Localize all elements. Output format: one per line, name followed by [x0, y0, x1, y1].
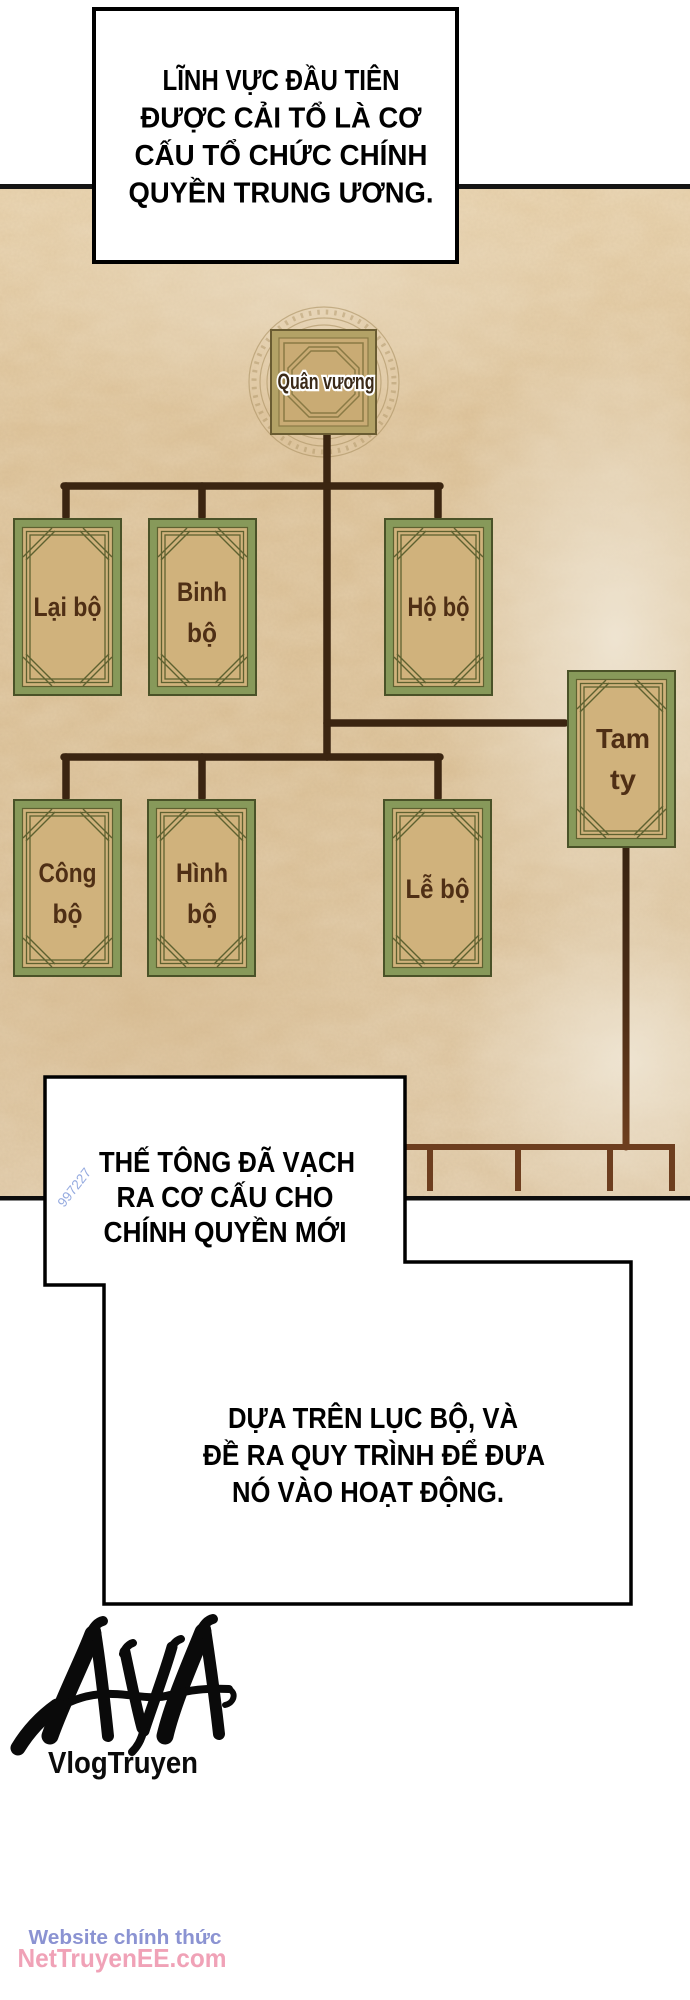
svg-text:VlogTruyen: VlogTruyen	[48, 1745, 198, 1780]
svg-text:DỰA TRÊN LỤC BỘ, VÀ: DỰA TRÊN LỤC BỘ, VÀ	[228, 1401, 518, 1435]
svg-text:Hình: Hình	[176, 858, 228, 888]
svg-text:CẤU TỔ CHỨC CHÍNH: CẤU TỔ CHỨC CHÍNH	[135, 138, 428, 172]
svg-text:bộ: bộ	[53, 899, 83, 929]
svg-text:LĨNH VỰC ĐẦU TIÊN: LĨNH VỰC ĐẦU TIÊN	[163, 63, 400, 97]
svg-text:ĐƯỢC CẢI TỔ LÀ CƠ: ĐƯỢC CẢI TỔ LÀ CƠ	[141, 101, 422, 135]
svg-text:Quân vương: Quân vương	[278, 369, 375, 394]
svg-text:CHÍNH QUYỀN MỚI: CHÍNH QUYỀN MỚI	[104, 1215, 347, 1249]
svg-text:Hộ bộ: Hộ bộ	[408, 592, 470, 622]
svg-text:Tam: Tam	[596, 723, 650, 754]
svg-text:ĐỀ RA QUY TRÌNH ĐỂ ĐƯA: ĐỀ RA QUY TRÌNH ĐỂ ĐƯA	[203, 1438, 545, 1472]
svg-text:bộ: bộ	[187, 618, 217, 648]
svg-text:NetTruyenEE.com: NetTruyenEE.com	[18, 1943, 227, 1973]
svg-text:QUYỀN TRUNG ƯƠNG.: QUYỀN TRUNG ƯƠNG.	[129, 176, 434, 210]
svg-text:ty: ty	[610, 764, 636, 795]
svg-text:NÓ VÀO HOẠT ĐỘNG.: NÓ VÀO HOẠT ĐỘNG.	[232, 1475, 504, 1509]
svg-text:THẾ TÔNG ĐÃ VẠCH: THẾ TÔNG ĐÃ VẠCH	[99, 1145, 355, 1179]
svg-text:bộ: bộ	[187, 899, 217, 929]
svg-text:Lễ bộ: Lễ bộ	[406, 873, 470, 904]
svg-text:Binh: Binh	[177, 577, 227, 607]
svg-text:Lại bộ: Lại bộ	[34, 592, 102, 622]
svg-text:Công: Công	[39, 858, 97, 888]
svg-text:RA CƠ CẤU CHO: RA CƠ CẤU CHO	[117, 1180, 334, 1214]
